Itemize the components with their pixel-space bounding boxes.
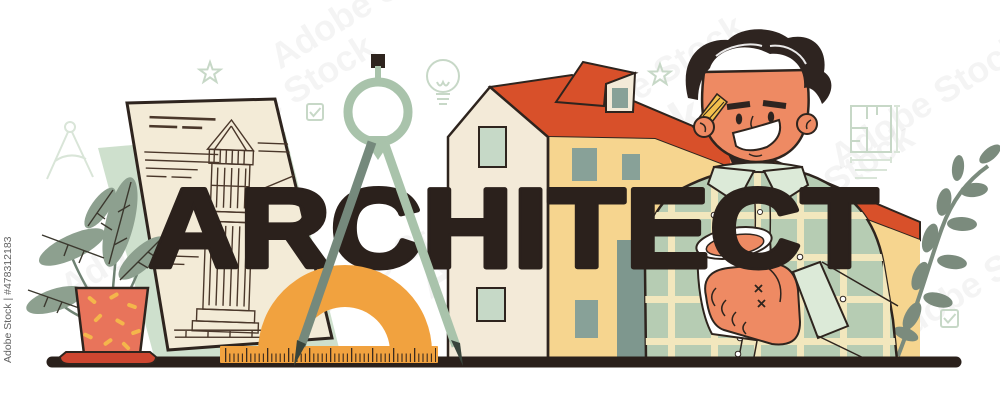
divider-icon xyxy=(47,122,93,179)
compass-handle xyxy=(371,54,385,68)
pot-saucer xyxy=(60,352,156,364)
lightbulb-icon xyxy=(427,60,459,104)
headline-text: ARCHITECT xyxy=(148,166,878,291)
compass-ring xyxy=(348,82,408,142)
house-window xyxy=(575,300,598,338)
house-window xyxy=(477,288,505,321)
star-icon xyxy=(200,62,221,82)
watermark-id-text: Adobe Stock | #478312183 xyxy=(2,236,14,363)
house-window xyxy=(479,127,506,167)
architect-illustration: Adobe Stock Adobe Stock Adobe Stock Adob… xyxy=(0,0,1000,406)
dormer-window xyxy=(612,88,628,108)
checkbox-check-icon xyxy=(307,104,323,120)
illustration-canvas: Adobe Stock Adobe Stock Adobe Stock Adob… xyxy=(0,0,1000,406)
ruler-ticks xyxy=(224,346,436,363)
